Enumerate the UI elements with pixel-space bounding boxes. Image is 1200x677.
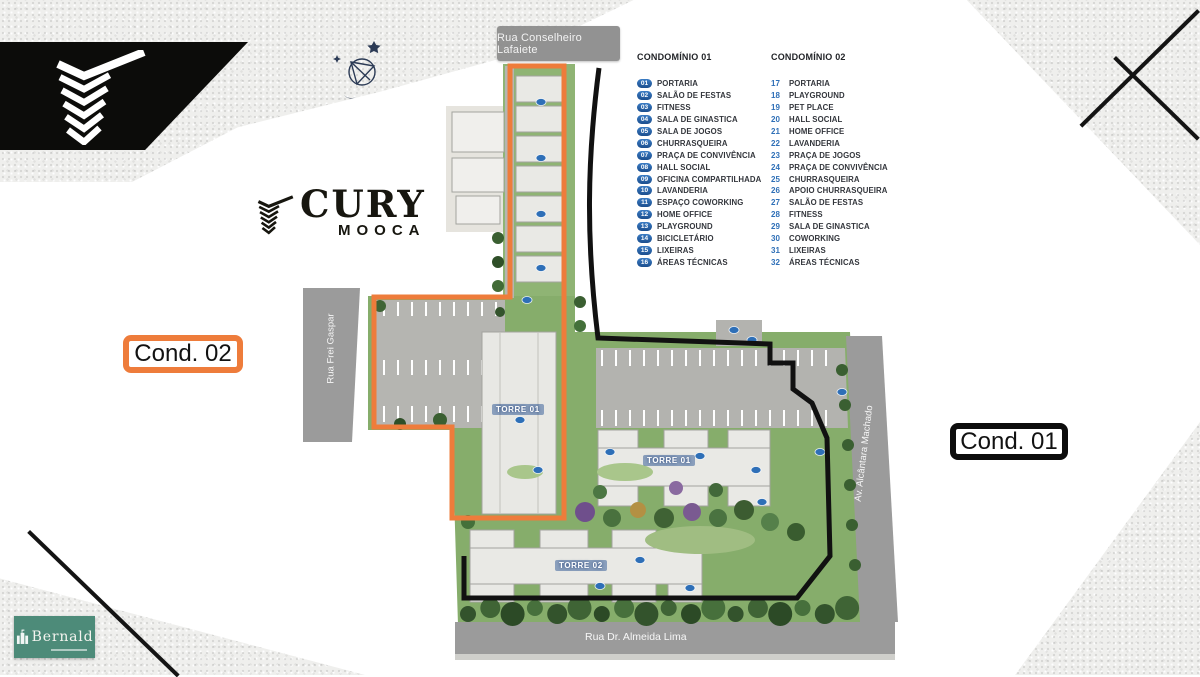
legend-item: 09 OFICINA COMPARTILHADA	[637, 173, 761, 185]
cond02-label: Cond. 02	[123, 335, 243, 373]
legend-item: 12 HOME OFFICE	[637, 209, 761, 221]
cury-logo: CURY MOOCA	[256, 186, 431, 244]
legend-item-number-badge: 12	[637, 210, 652, 219]
legend-item-text: HALL SOCIAL	[789, 115, 842, 124]
legend-item-number-badge: 07	[637, 151, 652, 160]
legend-item-number-badge: 16	[637, 258, 652, 267]
legend-item: 08 HALL SOCIAL	[637, 161, 761, 173]
legend-item: 16 ÁREAS TÉCNICAS	[637, 256, 761, 268]
legend-item-text: PLAYGROUND	[789, 91, 845, 100]
legend-item: 26 APOIO CHURRASQUEIRA	[771, 185, 888, 197]
legend-item-text: ESPAÇO COWORKING	[657, 198, 743, 207]
legend-item: 20 HALL SOCIAL	[771, 114, 888, 126]
legend-item-text: SALA DE JOGOS	[657, 127, 722, 136]
legend-item-text: SALÃO DE FESTAS	[657, 91, 731, 100]
street-label-bottom: Rua Dr. Almeida Lima	[585, 631, 687, 643]
legend-item-number: 19	[771, 103, 786, 112]
legend-item-text: BICICLETÁRIO	[657, 234, 714, 243]
legend-item-number: 32	[771, 258, 786, 267]
road-label-left: Rua Frei Gaspar	[326, 299, 337, 399]
legend-item-text: SALA DE GINASTICA	[789, 222, 870, 231]
legend-item: 10 LAVANDERIA	[637, 185, 761, 197]
cury-logo-subtitle: MOOCA	[338, 222, 426, 239]
bernald-logo-text: Bernald	[32, 629, 94, 645]
legend-item: 29 SALA DE GINASTICA	[771, 221, 888, 233]
legend-item-number: 28	[771, 210, 786, 219]
legend-item-number-badge: 02	[637, 91, 652, 100]
tower-label-cond01-torre02: TORRE 02	[555, 560, 607, 571]
legend-item-text: PLAYGROUND	[657, 222, 713, 231]
legend-item-text: PORTARIA	[657, 79, 698, 88]
legend-item: 27 SALÃO DE FESTAS	[771, 197, 888, 209]
legend-item: 03 FITNESS	[637, 102, 761, 114]
legend-item: 18 PLAYGROUND	[771, 90, 888, 102]
legend-item-text: LAVANDERIA	[657, 186, 708, 195]
legend-item: 23 PRAÇA DE JOGOS	[771, 149, 888, 161]
legend-item-text: LIXEIRAS	[789, 246, 826, 255]
legend-item: 30 COWORKING	[771, 233, 888, 245]
legend-item-number: 31	[771, 246, 786, 255]
legend-column-condominio-02: CONDOMÍNIO 02 17 PORTARIA 18 PLAYGROUND …	[771, 52, 888, 268]
legend-item-number-badge: 13	[637, 222, 652, 231]
legend-item: 19 PET PLACE	[771, 102, 888, 114]
legend-item-text: PRAÇA DE CONVIVÊNCIA	[657, 151, 756, 160]
legend-list-cond01: 01 PORTARIA 02 SALÃO DE FESTAS 03 FITNES…	[637, 78, 761, 268]
legend-item-text: PET PLACE	[789, 103, 834, 112]
legend-item-text: OFICINA COMPARTILHADA	[657, 175, 761, 184]
legend-item-text: LAVANDERIA	[789, 139, 840, 148]
legend-item-text: ÁREAS TÉCNICAS	[789, 258, 860, 267]
legend-item: 04 SALA DE GINASTICA	[637, 114, 761, 126]
legend-title-cond02: CONDOMÍNIO 02	[771, 52, 888, 62]
legend-item: 21 HOME OFFICE	[771, 126, 888, 138]
legend-item-number: 27	[771, 198, 786, 207]
legend-item: 14 BICICLETÁRIO	[637, 233, 761, 245]
legend-item-number: 26	[771, 186, 786, 195]
legend-item-number: 29	[771, 222, 786, 231]
legend-list-cond02: 17 PORTARIA 18 PLAYGROUND 19 PET PLACE 2…	[771, 78, 888, 268]
legend-item-number-badge: 11	[637, 198, 652, 207]
legend-item: 07 PRAÇA DE CONVIVÊNCIA	[637, 149, 761, 161]
legend-item-text: APOIO CHURRASQUEIRA	[789, 186, 888, 195]
legend-item-number-badge: 06	[637, 139, 652, 148]
legend-item-number: 24	[771, 163, 786, 172]
compass-icon	[328, 33, 390, 107]
legend-title-cond01: CONDOMÍNIO 01	[637, 52, 761, 62]
legend-item: 32 ÁREAS TÉCNICAS	[771, 256, 888, 268]
legend-item: 06 CHURRASQUEIRA	[637, 137, 761, 149]
legend-item-number: 30	[771, 234, 786, 243]
legend-item-text: LIXEIRAS	[657, 246, 694, 255]
tower-label-cond02-torre01: TORRE 01	[492, 404, 544, 415]
legend-column-condominio-01: CONDOMÍNIO 01 01 PORTARIA 02 SALÃO DE FE…	[637, 52, 761, 268]
legend-item-number-badge: 15	[637, 246, 652, 255]
legend-item: 24 PRAÇA DE CONVIVÊNCIA	[771, 161, 888, 173]
cury-logo-title: CURY	[300, 182, 426, 226]
legend-item-text: ÁREAS TÉCNICAS	[657, 258, 728, 267]
legend-item-text: PRAÇA DE CONVIVÊNCIA	[789, 163, 888, 172]
legend-item-text: CHURRASQUEIRA	[789, 175, 860, 184]
legend-item-text: PORTARIA	[789, 79, 830, 88]
legend-item: 28 FITNESS	[771, 209, 888, 221]
tower-label-cond01-torre01: TORRE 01	[643, 455, 695, 466]
legend-item-number: 23	[771, 151, 786, 160]
legend-item-number: 18	[771, 91, 786, 100]
legend-item-number: 22	[771, 139, 786, 148]
legend-item-text: PRAÇA DE JOGOS	[789, 151, 861, 160]
legend-item: 13 PLAYGROUND	[637, 221, 761, 233]
cond01-label: Cond. 01	[950, 423, 1068, 460]
legend-item-number: 17	[771, 79, 786, 88]
legend-item-number-badge: 14	[637, 234, 652, 243]
legend-item: 01 PORTARIA	[637, 78, 761, 90]
cury-chevron-icon-small	[256, 188, 296, 242]
legend-item-number-badge: 05	[637, 127, 652, 136]
legend-item: 31 LIXEIRAS	[771, 244, 888, 256]
legend-item-text: FITNESS	[657, 103, 691, 112]
legend-item-number-badge: 04	[637, 115, 652, 124]
legend-item-number-badge: 09	[637, 175, 652, 184]
bernald-tagline	[51, 649, 87, 651]
legend-item-number-badge: 08	[637, 163, 652, 172]
legend-item-text: HALL SOCIAL	[657, 163, 710, 172]
legend-item-number-badge: 01	[637, 79, 652, 88]
legend-item-text: CHURRASQUEIRA	[657, 139, 728, 148]
legend-item-number-badge: 03	[637, 103, 652, 112]
street-label-top: Rua Conselheiro Lafaiete	[497, 26, 620, 61]
legend-item-number: 20	[771, 115, 786, 124]
legend-item: 17 PORTARIA	[771, 78, 888, 90]
bernald-building-icon	[16, 629, 29, 645]
legend-item-text: HOME OFFICE	[657, 210, 712, 219]
legend-item-number-badge: 10	[637, 186, 652, 195]
legend-item-text: HOME OFFICE	[789, 127, 844, 136]
legend-item: 15 LIXEIRAS	[637, 244, 761, 256]
legend-item-number: 21	[771, 127, 786, 136]
legend-item-text: SALA DE GINASTICA	[657, 115, 738, 124]
legend-item-text: SALÃO DE FESTAS	[789, 198, 863, 207]
legend-item: 22 LAVANDERIA	[771, 137, 888, 149]
legend-item-text: COWORKING	[789, 234, 840, 243]
legend-item: 11 ESPAÇO COWORKING	[637, 197, 761, 209]
legend-item-text: FITNESS	[789, 210, 823, 219]
street-label-top-text: Rua Conselheiro Lafaiete	[497, 32, 620, 56]
legend-item: 25 CHURRASQUEIRA	[771, 173, 888, 185]
bernald-logo: Bernald	[14, 616, 95, 658]
legend-item: 05 SALA DE JOGOS	[637, 126, 761, 138]
legend-item: 02 SALÃO DE FESTAS	[637, 90, 761, 102]
legend-item-number: 25	[771, 175, 786, 184]
